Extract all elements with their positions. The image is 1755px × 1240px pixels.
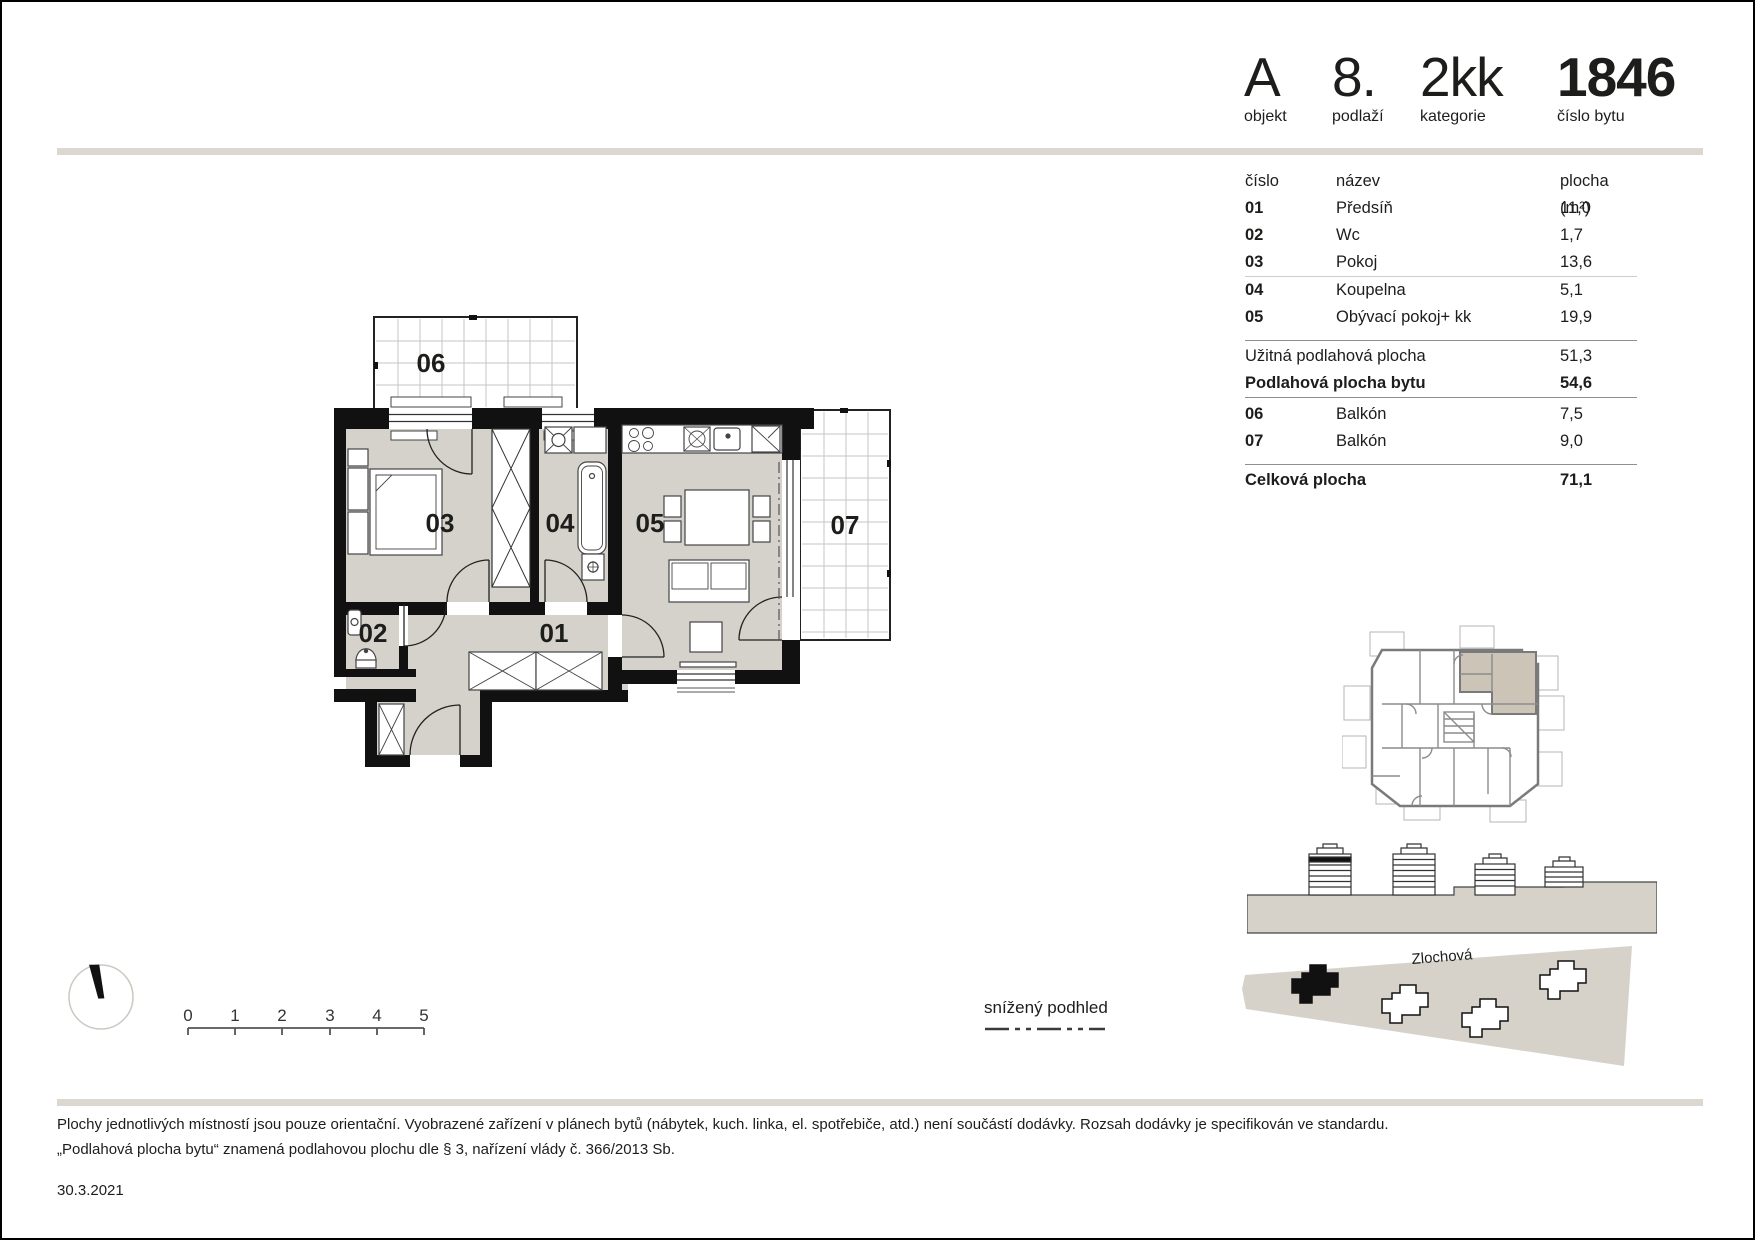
window-sills [677,688,735,692]
table-row: 01 Předsíň 11,0 [1245,195,1637,222]
table-row: 05 Obývací pokoj+ kk 19,9 [1245,304,1637,331]
room-label-02: 02 [359,618,388,648]
lowered-ceiling-linestyle [984,1025,1106,1033]
header-objekt: A objekt [1244,50,1287,126]
scale-tick-label: 1 [230,1006,239,1025]
kitchen-counter [622,425,782,453]
lowered-ceiling-label: snížený podhled [984,998,1108,1018]
header-divider [57,148,1703,155]
summary-row-podlahova: Podlahová plocha bytu 54,6 [1245,370,1637,398]
table-row-balkon: 06 Balkón 7,5 [1245,401,1637,428]
room-label-03: 03 [426,508,455,538]
room-label-07: 07 [831,510,860,540]
wardrobe-column [492,429,530,587]
objekt-value: A [1244,50,1287,105]
footer-date: 30.3.2021 [57,1178,1477,1203]
site-plan: Zlochová [1234,937,1659,1089]
podlazi-value: 8. [1332,50,1384,105]
podlazi-label: podlaží [1332,108,1384,126]
table-row: 04 Koupelna 5,1 [1245,277,1637,304]
footer-line2: „Podlahová plocha bytu“ znamená podlahov… [57,1137,1477,1162]
floorplan-sheet: A objekt 8. podlaží 2kk kategorie 1846 č… [0,0,1755,1240]
room-label-05: 05 [636,508,665,538]
scale-tick-label: 0 [183,1006,192,1025]
footer-line1: Plochy jednotlivých místností jsou pouze… [57,1112,1477,1137]
kategorie-label: kategorie [1420,108,1503,126]
scale-tick-label: 5 [419,1006,428,1025]
total-row: Celková plocha 71,1 [1245,464,1637,494]
cislo-bytu-label: číslo bytu [1557,108,1675,126]
floor-plan: 01 02 03 04 05 06 07 [332,310,892,780]
table-header-row: číslo název plocha (m²) [1245,168,1637,195]
scale-tick-label: 3 [325,1006,334,1025]
header-podlazi: 8. podlaží [1332,50,1384,126]
kategorie-value: 2kk [1420,50,1503,105]
highlighted-floor-band [1309,857,1351,862]
scale-tick-label: 2 [277,1006,286,1025]
street-elevation [1247,840,1657,935]
summary-row-uzitna: Užitná podlahová plocha 51,3 [1245,340,1637,370]
cislo-bytu-value: 1846 [1557,50,1675,105]
building-floor-overview [1342,624,1577,829]
objekt-label: objekt [1244,108,1287,126]
header-cislo-bytu: 1846 číslo bytu [1557,50,1675,126]
north-compass [59,954,143,1038]
scale-tick-label: 4 [372,1006,381,1025]
lowered-ceiling-legend: snížený podhled [984,998,1108,1038]
room-table: číslo název plocha (m²) 01 Předsíň 11,0 … [1245,168,1637,494]
balcony-06 [374,315,577,409]
scale-bar: 0 1 2 3 4 5 [180,997,432,1042]
footer: Plochy jednotlivých místností jsou pouze… [57,1112,1477,1203]
table-row: 03 Pokoj 13,6 [1245,249,1637,277]
header-kategorie: 2kk kategorie [1420,50,1503,126]
table-row: 02 Wc 1,7 [1245,222,1637,249]
footer-divider [57,1099,1703,1106]
table-row-balkon: 07 Balkón 9,0 [1245,428,1637,455]
room-label-06: 06 [417,348,446,378]
room-label-04: 04 [546,508,575,538]
room-label-01: 01 [540,618,569,648]
